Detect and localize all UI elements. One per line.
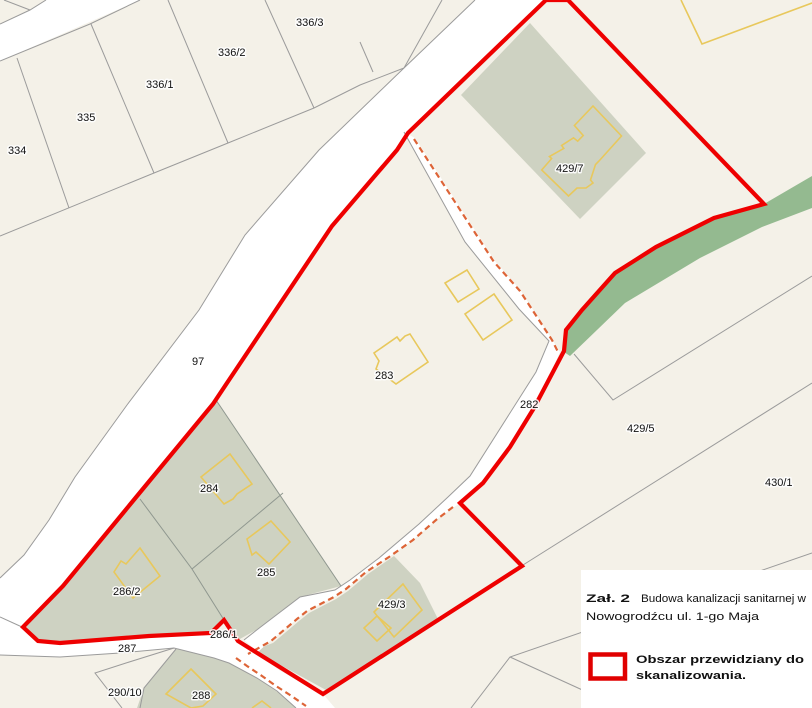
svg-text:283: 283	[375, 370, 393, 382]
svg-text:287: 287	[118, 643, 136, 655]
svg-text:429/5: 429/5	[627, 423, 655, 435]
svg-text:286/2: 286/2	[113, 586, 141, 598]
svg-text:282: 282	[520, 399, 538, 411]
svg-text:429/3: 429/3	[378, 599, 406, 611]
svg-text:Budowa kanalizacji sanitarnej: Budowa kanalizacji sanitarnej w	[641, 593, 806, 605]
svg-text:Nowogrodźcu ul. 1-go Maja: Nowogrodźcu ul. 1-go Maja	[586, 611, 760, 623]
svg-text:97: 97	[192, 356, 204, 368]
svg-text:334: 334	[8, 145, 26, 157]
svg-text:336/1: 336/1	[146, 79, 174, 91]
svg-text:288: 288	[192, 690, 210, 702]
svg-text:336/3: 336/3	[296, 17, 324, 29]
svg-text:skanalizowania.: skanalizowania.	[636, 670, 746, 682]
svg-text:Obszar przewidziany do: Obszar przewidziany do	[636, 654, 804, 666]
svg-text:430/1: 430/1	[765, 477, 793, 489]
svg-text:285: 285	[257, 567, 275, 579]
svg-text:Zał. 2: Zał. 2	[586, 593, 630, 605]
svg-text:286/1: 286/1	[210, 629, 238, 641]
svg-text:335: 335	[77, 112, 95, 124]
svg-text:429/7: 429/7	[556, 163, 584, 175]
svg-text:284: 284	[200, 483, 218, 495]
svg-text:336/2: 336/2	[218, 47, 246, 59]
svg-text:290/10: 290/10	[108, 687, 142, 699]
